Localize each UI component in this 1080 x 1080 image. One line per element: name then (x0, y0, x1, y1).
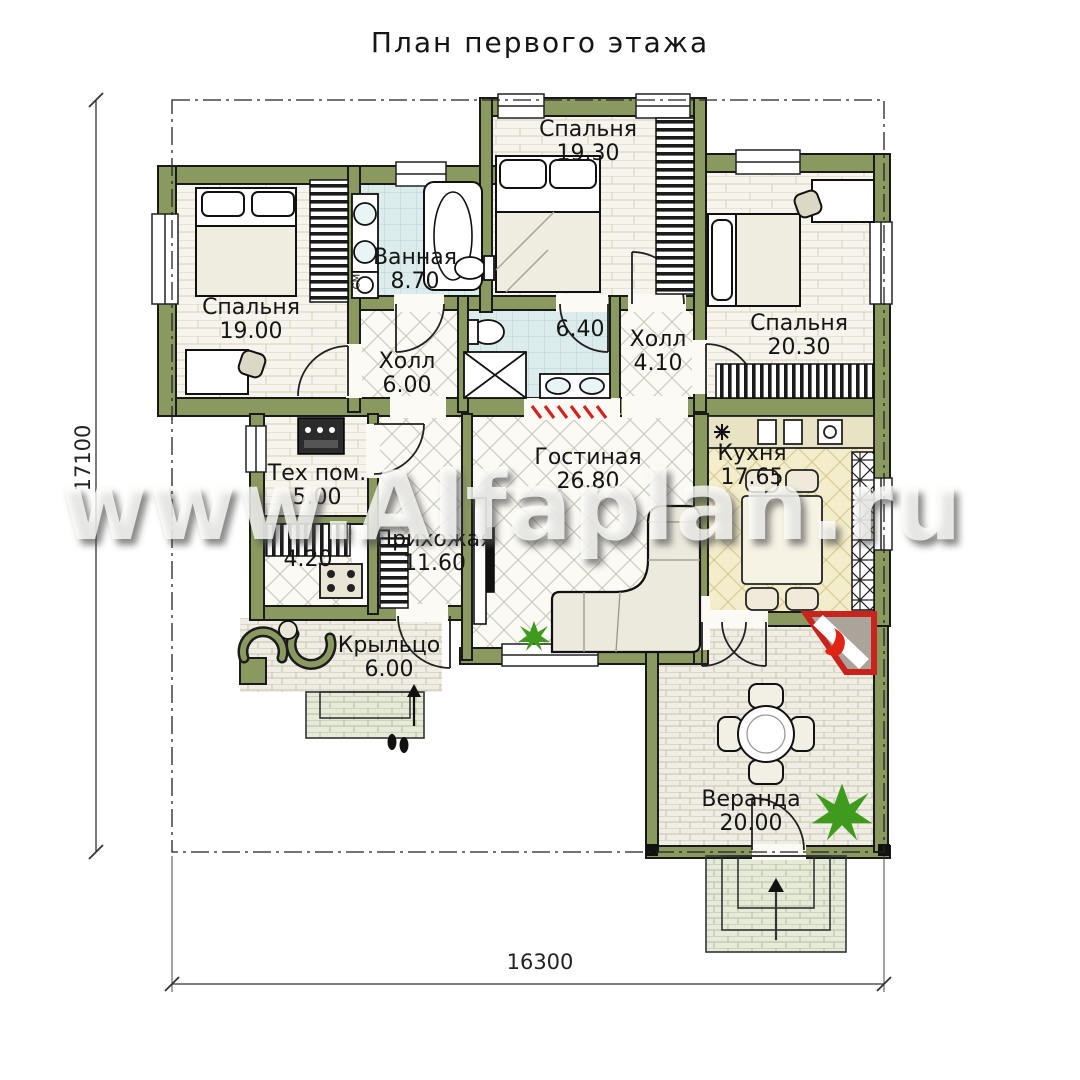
room-label-bedroom-left: Спальня19.00 (181, 296, 321, 344)
bed-icon (196, 188, 296, 296)
burner-icon (714, 424, 730, 440)
wardrobe-icon (716, 364, 874, 398)
bed-icon (496, 156, 600, 292)
room-label-wardrobe-room: 4.20 (268, 548, 348, 572)
dimension-width-label: 16300 (470, 950, 610, 974)
room-label-bedroom-top: Спальня19.30 (508, 118, 668, 166)
chair-icon (746, 588, 778, 610)
sink-icon (540, 374, 610, 398)
washer-label: СМ (352, 269, 363, 295)
room-label-hallway: Прихожая11.60 (362, 528, 507, 576)
chair-icon (786, 588, 818, 610)
room-label-porch: Крыльцо6.00 (319, 634, 459, 682)
boiler-icon (298, 418, 344, 454)
window-icon (870, 222, 892, 304)
room-label-hall-right: Холл4.10 (588, 328, 728, 376)
floor-porch-step (306, 692, 424, 738)
page-title: План первого этажа (0, 26, 1080, 59)
window-icon (736, 150, 800, 174)
chair-icon (749, 684, 783, 708)
side-table-icon (279, 621, 297, 639)
toilet-icon (468, 320, 504, 344)
room-label-bathroom: Ванная8.70 (350, 246, 480, 294)
chair-icon (749, 760, 783, 784)
dimension-height-label: 17100 (71, 403, 95, 513)
window-icon (636, 94, 690, 118)
room-label-kitchen: Кухня17.65 (682, 442, 822, 490)
window-icon (152, 214, 178, 304)
room-label-living-room: Гостиная26.80 (518, 446, 658, 494)
bed-icon (708, 214, 800, 306)
room-label-bedroom-right: Спальня20.30 (729, 312, 869, 360)
room-label-veranda: Веранда20.00 (681, 788, 821, 836)
window-icon (498, 94, 544, 118)
floor-plan-page: План первого этажа Спальня19.30 Спальня1… (0, 0, 1080, 1080)
room-label-hall-left: Холл6.00 (337, 350, 477, 398)
room-label-tech-room: Тех пом.5.00 (247, 462, 387, 510)
wardrobe-icon (310, 180, 348, 302)
cabinet-column-icon (852, 452, 874, 610)
